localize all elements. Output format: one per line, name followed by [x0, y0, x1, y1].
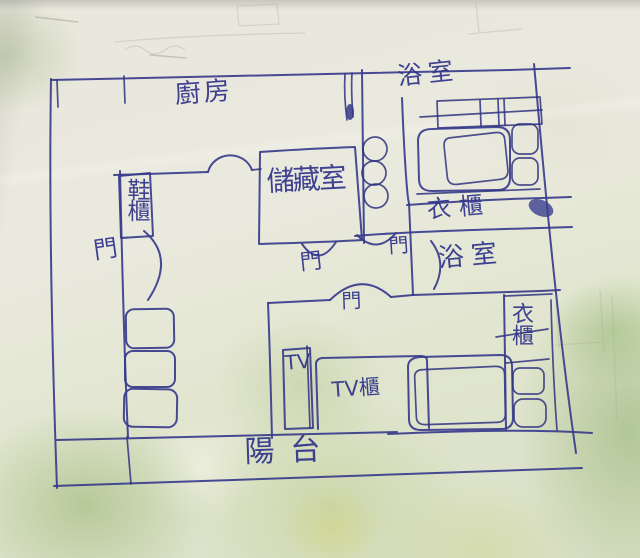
wardrobe-middle-label: 衣櫃 [426, 192, 492, 221]
bedroom-door-label: 門 [341, 290, 362, 311]
entrance-door-label: 門 [92, 236, 119, 263]
bed [408, 355, 513, 430]
sink-unit [512, 124, 538, 154]
stove-burners [362, 137, 388, 208]
shoe-cabinet-label: 鞋櫃 [124, 178, 147, 220]
bathroom-door-label: 門 [388, 235, 409, 256]
sofa-seat [126, 309, 175, 349]
burner-circle [362, 161, 386, 185]
burner-circle [363, 137, 387, 161]
wardrobe-bedroom-label: 衣櫃 [509, 302, 531, 346]
burner-circle [364, 184, 388, 208]
toilet-unit [512, 158, 538, 185]
pencil-line [115, 33, 305, 42]
wall-bottom [54, 468, 582, 486]
pencil-mark-top-right [468, 2, 640, 34]
wall-balcony-top-right [388, 431, 592, 434]
tv-label: TV [284, 351, 312, 373]
wall-ticks [57, 76, 125, 107]
floor-plan-drawing [0, 0, 640, 558]
floor-plan-photo: 廚房 浴室 儲藏室 衣櫃 浴室 鞋櫃 門 門 門 門 TV TV櫃 衣櫃 陽台 [0, 0, 640, 558]
sofa-seat [125, 351, 175, 387]
wall-balcony-top-left [57, 432, 397, 440]
hallway-door-label: 門 [299, 251, 323, 275]
ink-blob-small [346, 104, 354, 120]
storage-room-label: 儲藏室 [266, 164, 345, 196]
bathroom-top-label: 浴室 [396, 58, 460, 89]
wall-mid-vertical [362, 70, 364, 243]
entrance-door-arc [144, 231, 161, 300]
wall-top [51, 68, 570, 80]
sofa-seat [124, 389, 178, 428]
pencil-grid-right [556, 290, 617, 420]
kitchen-door-arc [208, 155, 252, 172]
pencil-scribble [125, 46, 185, 54]
kitchen-label: 廚房 [174, 78, 234, 108]
pencil-rect [237, 4, 279, 26]
wall-balcony-divider [127, 437, 131, 484]
washer-drum [443, 132, 508, 185]
wall-left [50, 79, 57, 488]
tv-cabinet-label: TV櫃 [331, 377, 381, 401]
wardrobe-drawer [513, 368, 544, 394]
wardrobe-drawer [514, 399, 546, 427]
bathroom-top-fixtures [417, 97, 542, 194]
wall-bedroom-left [268, 303, 272, 438]
balcony-label: 陽台 [244, 435, 337, 468]
sofa-seats [124, 309, 178, 428]
bathroom-middle-label: 浴室 [437, 240, 505, 272]
wall-bathroom-left [402, 98, 413, 294]
